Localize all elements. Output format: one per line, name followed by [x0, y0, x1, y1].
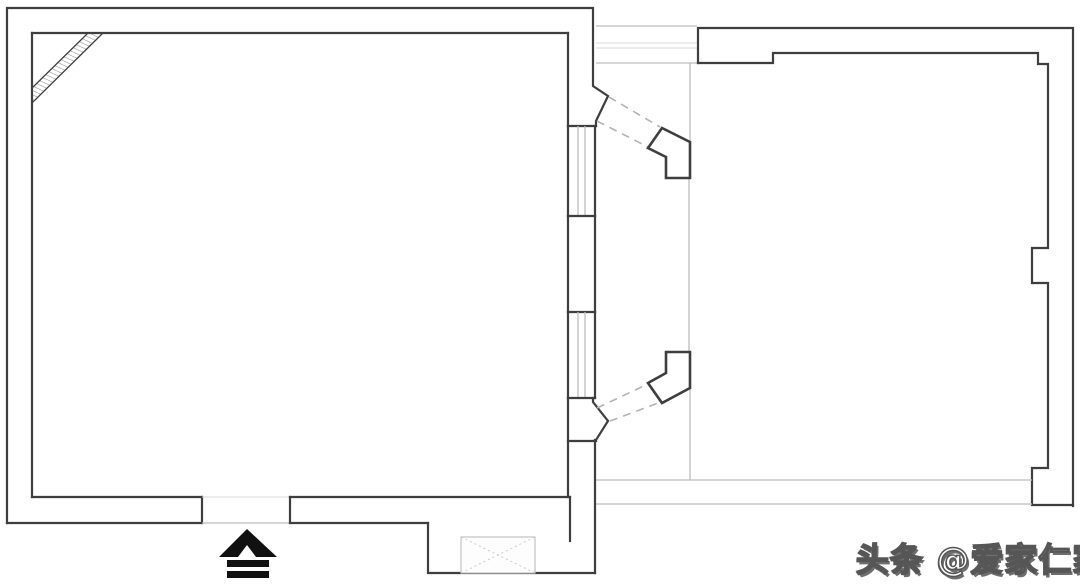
window-right-lower	[568, 312, 595, 398]
right-room-walls	[596, 28, 1073, 506]
watermark-text: 头条 @爱家仁家	[856, 533, 1076, 581]
pier-lower	[648, 352, 690, 403]
left-room-walls	[7, 8, 608, 573]
right-room-bottom-wall-faint	[596, 480, 1032, 504]
entrance-arrow	[219, 529, 277, 578]
floor-plan	[0, 0, 1080, 584]
dashed-opening-upper	[597, 97, 660, 147]
pier-upper	[648, 128, 690, 178]
floor-plan-svg	[0, 0, 1080, 584]
passage-top-window	[596, 26, 697, 63]
passage	[596, 26, 697, 480]
angled-door-piers	[648, 128, 690, 403]
window-right-upper	[568, 126, 595, 216]
shaft-box	[461, 537, 535, 573]
corner-flue-hatch	[32, 33, 103, 103]
entrance-door-opening	[202, 497, 290, 523]
